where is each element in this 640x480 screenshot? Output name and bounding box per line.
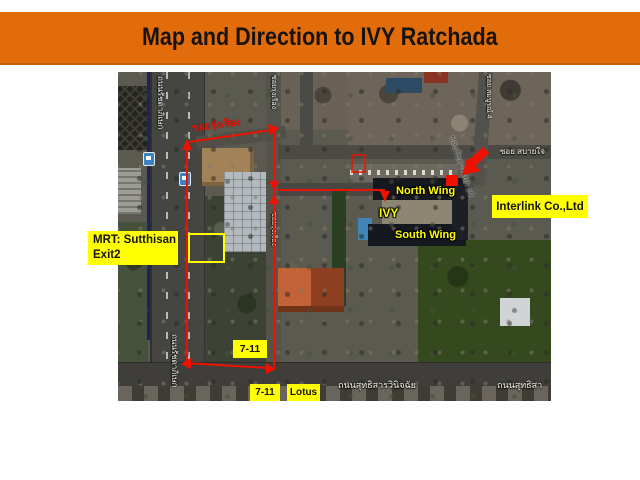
lotus-label: Lotus (287, 384, 320, 401)
south-wing-label: South Wing (395, 229, 456, 241)
ivy-label: IVY (379, 206, 398, 220)
satellite-map: ถนนรัชดาภิเษก ถนนรัชดาภิเษก ซอยรุ่งเรือง… (118, 72, 551, 401)
seven-eleven-label: 7-11 (233, 340, 267, 358)
route-arrow-up-icon (269, 194, 279, 204)
page-title: Map and Direction to IVY Ratchada (142, 23, 498, 52)
slide: Map and Direction to IVY Ratchada (0, 0, 640, 480)
seven-eleven-label: 7-11 (250, 384, 280, 401)
route-arrow-down-icon (380, 191, 390, 202)
mrt-station-highlight-rect (188, 233, 225, 263)
mrt-label-line1: MRT: Sutthisan (93, 233, 176, 248)
route-overlay (118, 72, 551, 401)
entrance-arrow-shaft (471, 150, 486, 164)
route-line-rungruang (189, 130, 271, 142)
mrt-label-line2: Exit2 (93, 248, 121, 263)
route-arrow-up-icon (182, 139, 192, 150)
interlink-label: Interlink Co.,Ltd (492, 195, 588, 218)
mrt-exit-label: MRT: Sutthisan Exit2 (88, 231, 178, 265)
building-highlight-rect (352, 155, 365, 172)
title-banner: Map and Direction to IVY Ratchada (0, 12, 640, 65)
north-wing-label: North Wing (396, 185, 455, 197)
